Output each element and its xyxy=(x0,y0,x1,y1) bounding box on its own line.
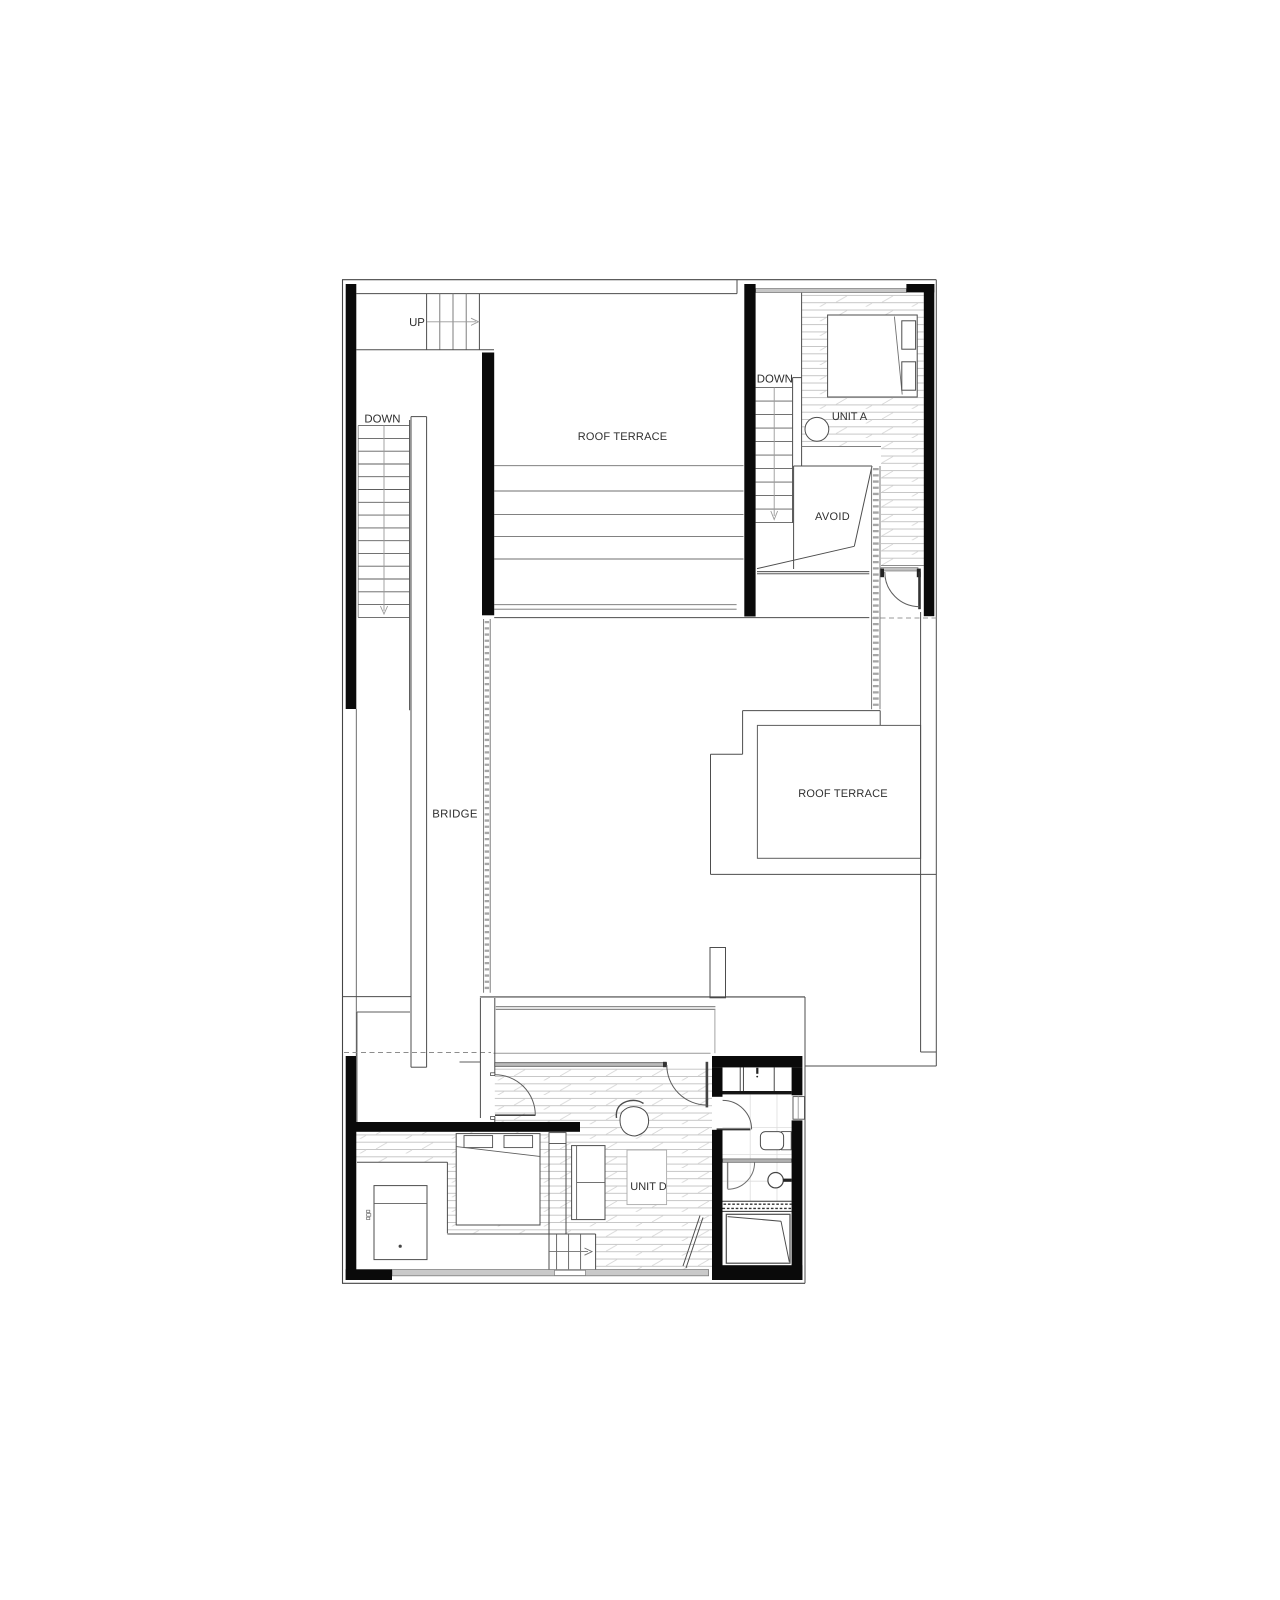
svg-text:ROOF TERRACE: ROOF TERRACE xyxy=(798,788,888,800)
svg-text:UP: UP xyxy=(409,317,425,329)
svg-text:AVOID: AVOID xyxy=(815,511,850,523)
svg-text:UNIT A: UNIT A xyxy=(832,411,868,423)
svg-text:UNIT D: UNIT D xyxy=(630,1181,667,1193)
svg-text:DOWN: DOWN xyxy=(364,413,400,425)
svg-text:DOWN: DOWN xyxy=(757,373,793,385)
svg-text:BRIDGE: BRIDGE xyxy=(432,809,478,821)
svg-text:ROOF TERRACE: ROOF TERRACE xyxy=(578,431,668,443)
